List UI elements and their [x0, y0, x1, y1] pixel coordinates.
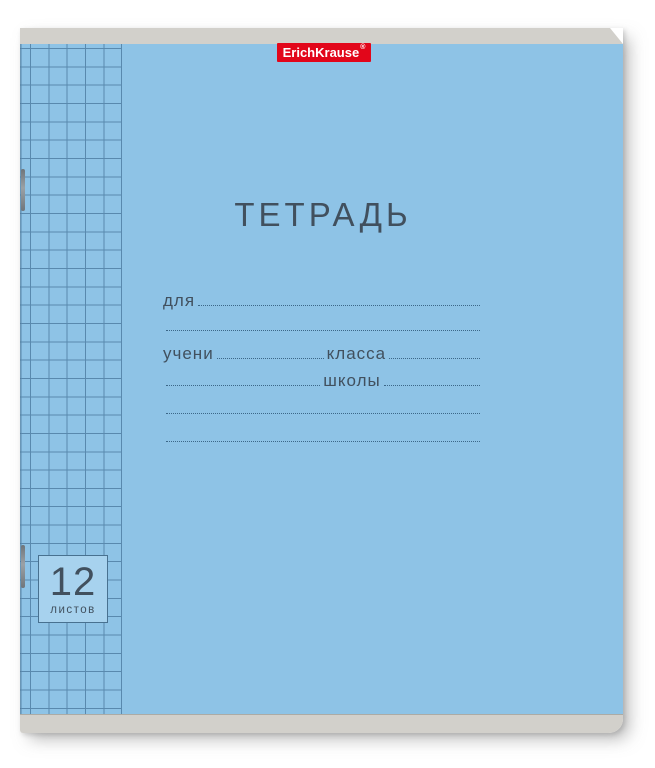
notebook-cover: ErichKrause® ТЕТРАДЬ для учени класса шк… [20, 28, 623, 733]
binding-strip-bottom [20, 714, 623, 733]
dotted-line [166, 441, 480, 442]
dotted-line [166, 413, 480, 414]
sheets-count: 12 [50, 562, 97, 602]
staple-top [21, 169, 25, 211]
form-row-blank-2 [163, 394, 483, 418]
dotted-line [166, 385, 320, 386]
student-label: учени [163, 344, 214, 363]
cover-title: ТЕТРАДЬ [163, 196, 483, 234]
form-row-school: школы [163, 366, 483, 390]
form-row-blank-3 [163, 422, 483, 446]
for-label: для [163, 291, 195, 310]
school-label: школы [323, 371, 381, 390]
brand-logo-text: ErichKrause [283, 45, 360, 60]
dotted-line [384, 385, 480, 386]
staple-bottom [21, 545, 25, 588]
sheets-count-box: 12 листов [38, 555, 108, 623]
brand-logo: ErichKrause® [277, 43, 371, 62]
binding-strip-top [20, 28, 623, 44]
dotted-line [217, 358, 324, 359]
registered-mark-icon: ® [360, 43, 365, 53]
form-row-student-class: учени класса [163, 339, 483, 363]
dotted-line [166, 330, 480, 331]
dotted-line [198, 305, 480, 306]
form-row-for: для [163, 286, 483, 310]
dotted-line [389, 358, 480, 359]
form-row-blank-1 [163, 311, 483, 335]
sheets-unit-label: листов [50, 604, 96, 616]
class-label: класса [327, 344, 386, 363]
